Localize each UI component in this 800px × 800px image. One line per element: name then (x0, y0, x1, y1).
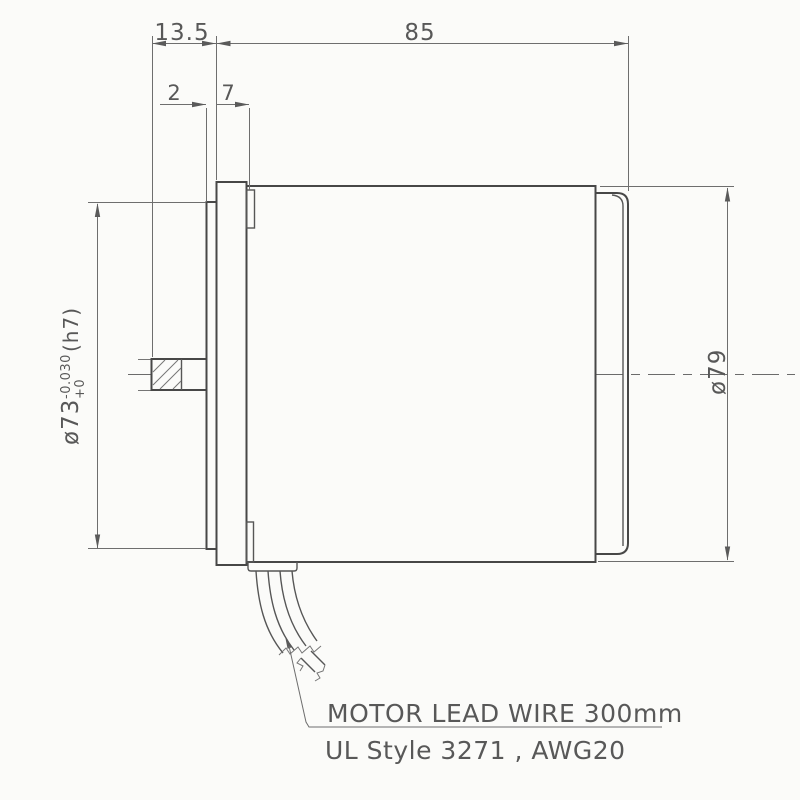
notes: MOTOR LEAD WIRE 300mm UL Style 3271 , AW… (325, 699, 683, 765)
dim-arrow (95, 535, 100, 549)
dim-label-dia73-tol-lower: -0.030 (59, 354, 74, 399)
mounting-flange (217, 182, 247, 565)
rear-cap-inner-edge (612, 195, 623, 546)
dim-label-7: 7 (221, 81, 234, 105)
wire-tail-jag (315, 665, 325, 681)
dim-label-dia73: ø73 (58, 399, 84, 445)
dim-arrow (217, 41, 231, 46)
dim-arrow (725, 547, 730, 561)
dim-arrow (192, 102, 206, 107)
dim-label-13-5: 13.5 (154, 20, 209, 46)
wire-tail (301, 658, 315, 672)
lead-wires (248, 562, 325, 681)
wire-break-jag (279, 646, 321, 655)
pilot-register (207, 202, 217, 549)
dim-arrow (95, 203, 100, 217)
motor-body (247, 186, 596, 562)
dim-label-dia73-fit: (h7) (59, 307, 83, 352)
shaft-outline (152, 359, 207, 390)
dim-label-dia79: ø79 (705, 349, 731, 395)
dim-label-85: 85 (404, 20, 435, 46)
dim-arrow (235, 102, 249, 107)
note-wire-spec: UL Style 3271 , AWG20 (325, 736, 626, 765)
dim-label-2: 2 (167, 81, 180, 105)
leader-arrowhead (285, 636, 292, 649)
dim-label-dia73-tol-upper: +0 (73, 379, 88, 399)
note-lead-wire: MOTOR LEAD WIRE 300mm (327, 699, 683, 728)
dim-arrow (614, 41, 628, 46)
dim-arrow (725, 188, 730, 202)
technical-drawing: 13.5 85 2 7 ø73 +0 -0.030 (h7) (0, 0, 800, 800)
rear-end-cap (596, 193, 628, 554)
wire-grommet (248, 562, 297, 571)
drawing-sheet: 13.5 85 2 7 ø73 +0 -0.030 (h7) (0, 0, 800, 800)
wire-tail (311, 651, 325, 665)
